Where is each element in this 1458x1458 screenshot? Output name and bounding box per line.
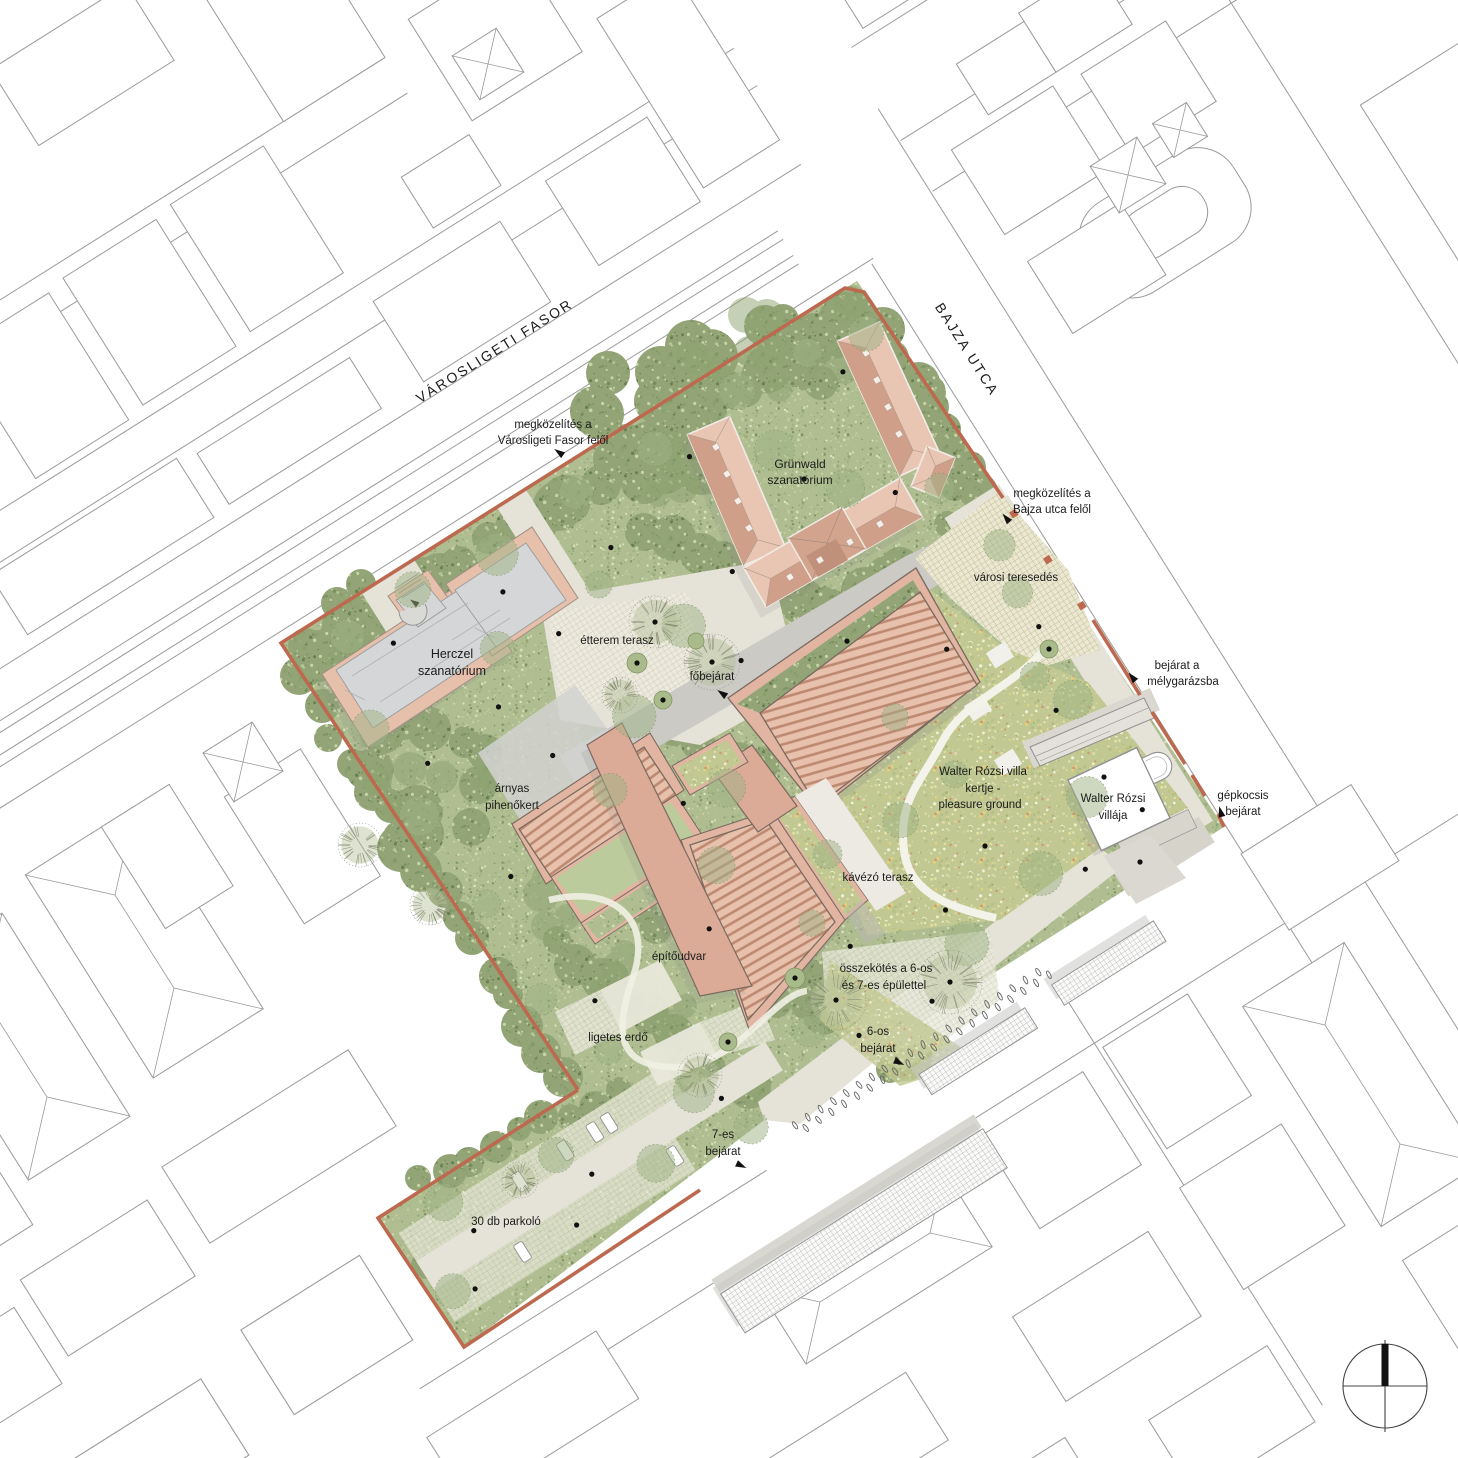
svg-text:villája: villája [1099, 810, 1128, 822]
svg-text:6-os: 6-os [867, 1026, 890, 1038]
svg-text:mélygarázsba: mélygarázsba [1147, 676, 1219, 688]
svg-text:árnyas: árnyas [495, 783, 530, 795]
svg-text:Walter Rózsi: Walter Rózsi [1081, 793, 1146, 805]
svg-text:bejárat: bejárat [1225, 806, 1261, 818]
svg-text:bejárat a: bejárat a [1155, 660, 1200, 672]
svg-text:építőudvar: építőudvar [652, 951, 707, 963]
svg-text:és 7-es épülettel: és 7-es épülettel [842, 980, 926, 992]
svg-text:kávézó terasz: kávézó terasz [843, 872, 914, 884]
svg-text:pleasure ground: pleasure ground [938, 799, 1021, 811]
svg-text:kertje -: kertje - [965, 783, 1000, 795]
svg-text:főbejárat: főbejárat [690, 671, 736, 683]
svg-text:bejárat: bejárat [860, 1043, 896, 1055]
svg-text:gépkocsis: gépkocsis [1217, 790, 1268, 802]
svg-text:étterem terasz: étterem terasz [580, 635, 654, 647]
svg-text:bejárat: bejárat [705, 1146, 741, 1158]
svg-text:városi teresedés: városi teresedés [974, 572, 1059, 584]
svg-text:szanatórium: szanatórium [418, 664, 486, 678]
svg-text:Walter Rózsi villa: Walter Rózsi villa [939, 766, 1027, 778]
svg-text:Grünwald: Grünwald [774, 457, 825, 471]
svg-text:Városligeti Fasor felől: Városligeti Fasor felől [498, 435, 609, 447]
svg-text:megközelítés a: megközelítés a [1013, 488, 1091, 500]
svg-text:Bajza utca felől: Bajza utca felől [1013, 504, 1091, 516]
svg-text:7-es: 7-es [712, 1129, 735, 1141]
svg-text:ligetes erdő: ligetes erdő [588, 1032, 647, 1044]
svg-text:pihenőkert: pihenőkert [485, 800, 540, 812]
svg-text:30 db parkoló: 30 db parkoló [471, 1216, 541, 1228]
svg-text:összekötés a 6-os: összekötés a 6-os [840, 963, 933, 975]
svg-text:Herczel: Herczel [431, 647, 473, 661]
svg-text:megközelítés a: megközelítés a [514, 419, 592, 431]
svg-text:szanatórium: szanatórium [767, 473, 832, 487]
